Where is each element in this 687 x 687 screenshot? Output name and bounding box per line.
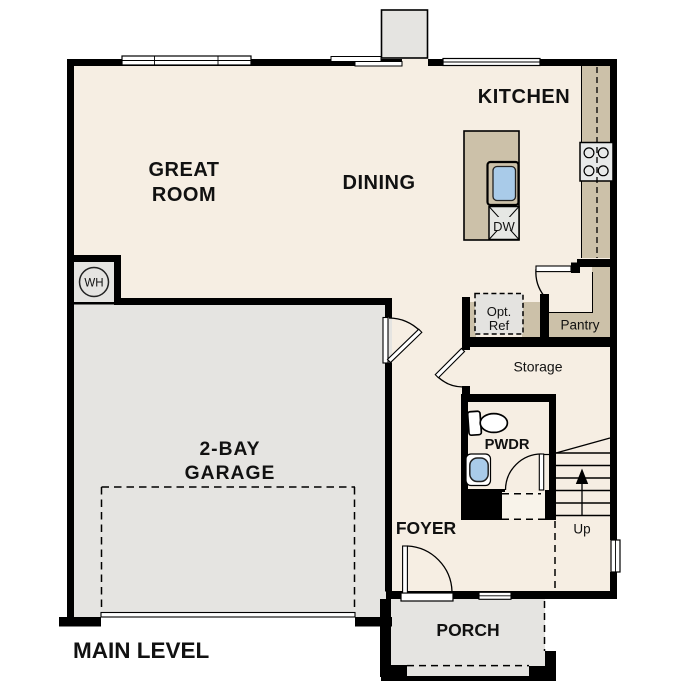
svg-text:GARAGE: GARAGE xyxy=(185,463,276,484)
svg-text:Pantry: Pantry xyxy=(560,318,599,333)
svg-text:DINING: DINING xyxy=(343,172,416,194)
svg-text:Storage: Storage xyxy=(513,359,562,375)
svg-text:2-BAY: 2-BAY xyxy=(199,439,260,460)
svg-text:Opt.: Opt. xyxy=(487,304,512,319)
svg-text:GREAT: GREAT xyxy=(148,159,219,181)
svg-text:MAIN LEVEL: MAIN LEVEL xyxy=(73,638,210,663)
svg-text:ROOM: ROOM xyxy=(152,184,216,206)
svg-text:WH: WH xyxy=(84,278,103,290)
svg-text:PWDR: PWDR xyxy=(485,437,530,453)
svg-text:Ref: Ref xyxy=(489,318,510,333)
svg-text:PORCH: PORCH xyxy=(436,620,499,640)
svg-text:KITCHEN: KITCHEN xyxy=(478,86,570,108)
svg-text:Up: Up xyxy=(573,522,590,537)
svg-text:FOYER: FOYER xyxy=(396,518,457,538)
svg-text:DW: DW xyxy=(493,219,515,234)
